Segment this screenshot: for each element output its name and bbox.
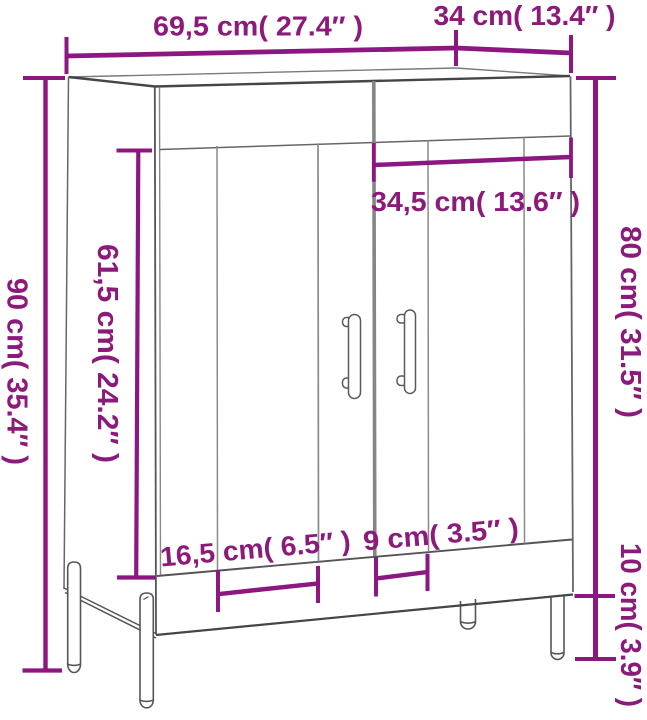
svg-text:34,5 cm( 13.6″ ): 34,5 cm( 13.6″ ): [371, 186, 580, 217]
svg-text:61,5 cm( 24.2″ ): 61,5 cm( 24.2″ ): [91, 244, 123, 463]
svg-text:34 cm( 13.4″ ): 34 cm( 13.4″ ): [434, 0, 616, 31]
svg-text:90 cm( 35.4″ ): 90 cm( 35.4″ ): [1, 278, 33, 465]
svg-text:80 cm( 31.5″ ): 80 cm( 31.5″ ): [614, 226, 646, 418]
svg-text:69,5 cm( 27.4″ ): 69,5 cm( 27.4″ ): [153, 11, 363, 42]
svg-text:10 cm( 3.9″ ): 10 cm( 3.9″ ): [614, 543, 646, 707]
